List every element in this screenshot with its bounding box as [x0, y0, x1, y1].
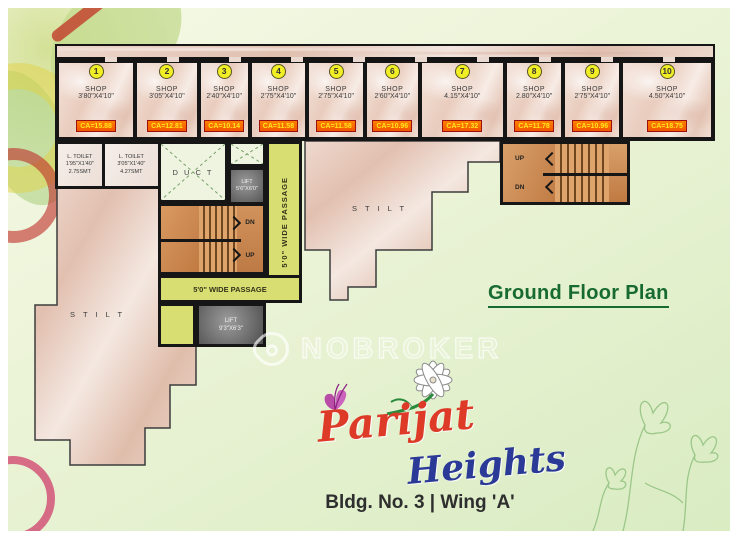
shop-unit: 4 SHOP 2'75"X4'10" CA=11.58	[252, 63, 306, 137]
shop-unit: 7 SHOP 4.15"X4'10" CA=17.32	[422, 63, 503, 137]
staircase-right: UP DN	[500, 141, 630, 205]
toilet-area: 4.27SMT	[120, 169, 142, 176]
shop-carpet-area-badge: CA=10.14	[204, 120, 244, 132]
passage-label: 5'0" WIDE PASSAGE	[280, 177, 289, 268]
shops-row: 1 SHOP 3'80"X4'10" CA=15.88 2 SHOP 3'05"…	[55, 57, 715, 141]
vent-room	[228, 141, 266, 167]
lift-label: LIFT	[225, 317, 237, 325]
shop-carpet-area-badge: CA=10.96	[372, 120, 412, 132]
project-logo: Parijat Heights	[305, 366, 575, 496]
shop-unit: 9 SHOP 2'75"X4'10" CA=10.96	[565, 63, 619, 137]
stilt-middle-label: S T I L T	[352, 204, 407, 213]
shop-label: SHOP	[85, 86, 107, 93]
passage-horizontal: 5'0" WIDE PASSAGE	[158, 275, 302, 303]
plan-title: Ground Floor Plan	[488, 282, 669, 308]
toilet-block: L. TOILET 1'95"X1'40" 2.75SMT L. TOILET …	[55, 141, 161, 189]
shop-number-badge: 5	[329, 64, 344, 79]
shop-number-badge: 8	[527, 64, 542, 79]
exterior-wall-band	[55, 44, 715, 57]
shop-label: SHOP	[268, 86, 290, 93]
shop-dimension: 2'75"X4'10"	[261, 93, 297, 100]
toilet-dimension: 1'95"X1'40"	[66, 161, 94, 168]
shop-unit: 10 SHOP 4.50"X4'10" CA=18.75	[623, 63, 711, 137]
lift-label: LIFT	[241, 179, 252, 186]
shop-carpet-area-badge: CA=18.75	[647, 120, 687, 132]
shop-dimension: 4.50"X4'10"	[649, 93, 685, 100]
shop-number-badge: 9	[585, 64, 600, 79]
duct-room: D U C T	[158, 141, 228, 203]
shop-label: SHOP	[581, 86, 603, 93]
shop-dimension: 3'05"X4'10"	[149, 93, 185, 100]
stair-landing-divider	[161, 239, 241, 242]
passage-patch	[158, 303, 196, 347]
shop-carpet-area-badge: CA=17.32	[442, 120, 482, 132]
shop-label: SHOP	[656, 86, 678, 93]
shop-carpet-area-badge: CA=11.58	[316, 120, 355, 132]
shop-dimension: 2'60"X4'10"	[375, 93, 411, 100]
shop-dimension: 2'75"X4'10"	[318, 93, 354, 100]
stair-up-label: UP	[237, 239, 263, 272]
shop-carpet-area-badge: CA=10.96	[572, 120, 612, 132]
stilt-area-middle	[305, 141, 500, 300]
nobroker-pin-icon	[248, 325, 296, 373]
lift-room-small: LIFT 5'6"X6'0"	[228, 167, 266, 205]
shop-number-badge: 1	[89, 64, 104, 79]
shop-carpet-area-badge: CA=11.58	[259, 120, 298, 132]
shops-front-wall	[55, 57, 715, 62]
toilet-room: L. TOILET 1'95"X1'40" 2.75SMT	[58, 144, 102, 186]
shop-unit: 1 SHOP 3'80"X4'10" CA=15.88	[59, 63, 133, 137]
shop-dimension: 2.80"X4'10"	[516, 93, 552, 100]
staircase-middle: DN UP	[158, 203, 266, 275]
shop-label: SHOP	[156, 86, 178, 93]
shop-unit: 3 SHOP 2'40"X4'10" CA=10.14	[201, 63, 248, 137]
lift-dimension: 9'3"X6'3"	[219, 325, 243, 333]
toilet-label: L. TOILET	[67, 154, 92, 161]
toilet-label: L. TOILET	[119, 154, 144, 161]
shop-number-badge: 6	[385, 64, 400, 79]
stair-landing-divider	[543, 173, 627, 176]
shop-dimension: 4.15"X4'10"	[444, 93, 480, 100]
toilet-room: L. TOILET 3'05"X1'40" 4.27SMT	[105, 144, 158, 186]
toilet-area: 2.75SMT	[69, 169, 91, 176]
shop-dimension: 3'80"X4'10"	[78, 93, 114, 100]
shop-carpet-area-badge: CA=15.88	[76, 120, 116, 132]
shop-number-badge: 3	[217, 64, 232, 79]
passage-label: 5'0" WIDE PASSAGE	[193, 285, 267, 294]
shop-unit: 2 SHOP 3'05"X4'10" CA=12.81	[137, 63, 197, 137]
shop-unit: 5 SHOP 2'75"X4'10" CA=11.58	[309, 63, 363, 137]
stilt-left-label: S T I L T	[70, 310, 125, 319]
duct-label: D U C T	[161, 144, 225, 200]
logo-name-secondary: Heights	[405, 437, 567, 493]
shop-number-badge: 7	[455, 64, 470, 79]
building-wing-label: Bldg. No. 3 | Wing 'A'	[280, 492, 560, 514]
shop-label: SHOP	[451, 86, 473, 93]
shop-number-badge: 4	[271, 64, 286, 79]
toilet-dimension: 3'05"X1'40"	[117, 161, 145, 168]
lift-dimension: 5'6"X6'0"	[236, 186, 258, 193]
shop-label: SHOP	[523, 86, 545, 93]
vent-crosshatch-icon	[231, 144, 263, 164]
shop-label: SHOP	[325, 86, 347, 93]
shop-dimension: 2'40"X4'10"	[206, 93, 242, 100]
shop-dimension: 2'75"X4'10"	[574, 93, 610, 100]
shop-label: SHOP	[381, 86, 403, 93]
shop-carpet-area-badge: CA=12.81	[147, 120, 187, 132]
shop-unit: 6 SHOP 2'60"X4'10" CA=10.96	[367, 63, 418, 137]
shop-number-badge: 2	[159, 64, 174, 79]
shop-label: SHOP	[213, 86, 235, 93]
shop-carpet-area-badge: CA=11.78	[514, 120, 553, 132]
floor-plan-image: S T I L T S T I L T 1 SHOP 3'80"X4'10" C…	[0, 0, 738, 539]
shop-number-badge: 10	[660, 64, 675, 79]
shop-unit: 8 SHOP 2.80"X4'10" CA=11.78	[507, 63, 562, 137]
